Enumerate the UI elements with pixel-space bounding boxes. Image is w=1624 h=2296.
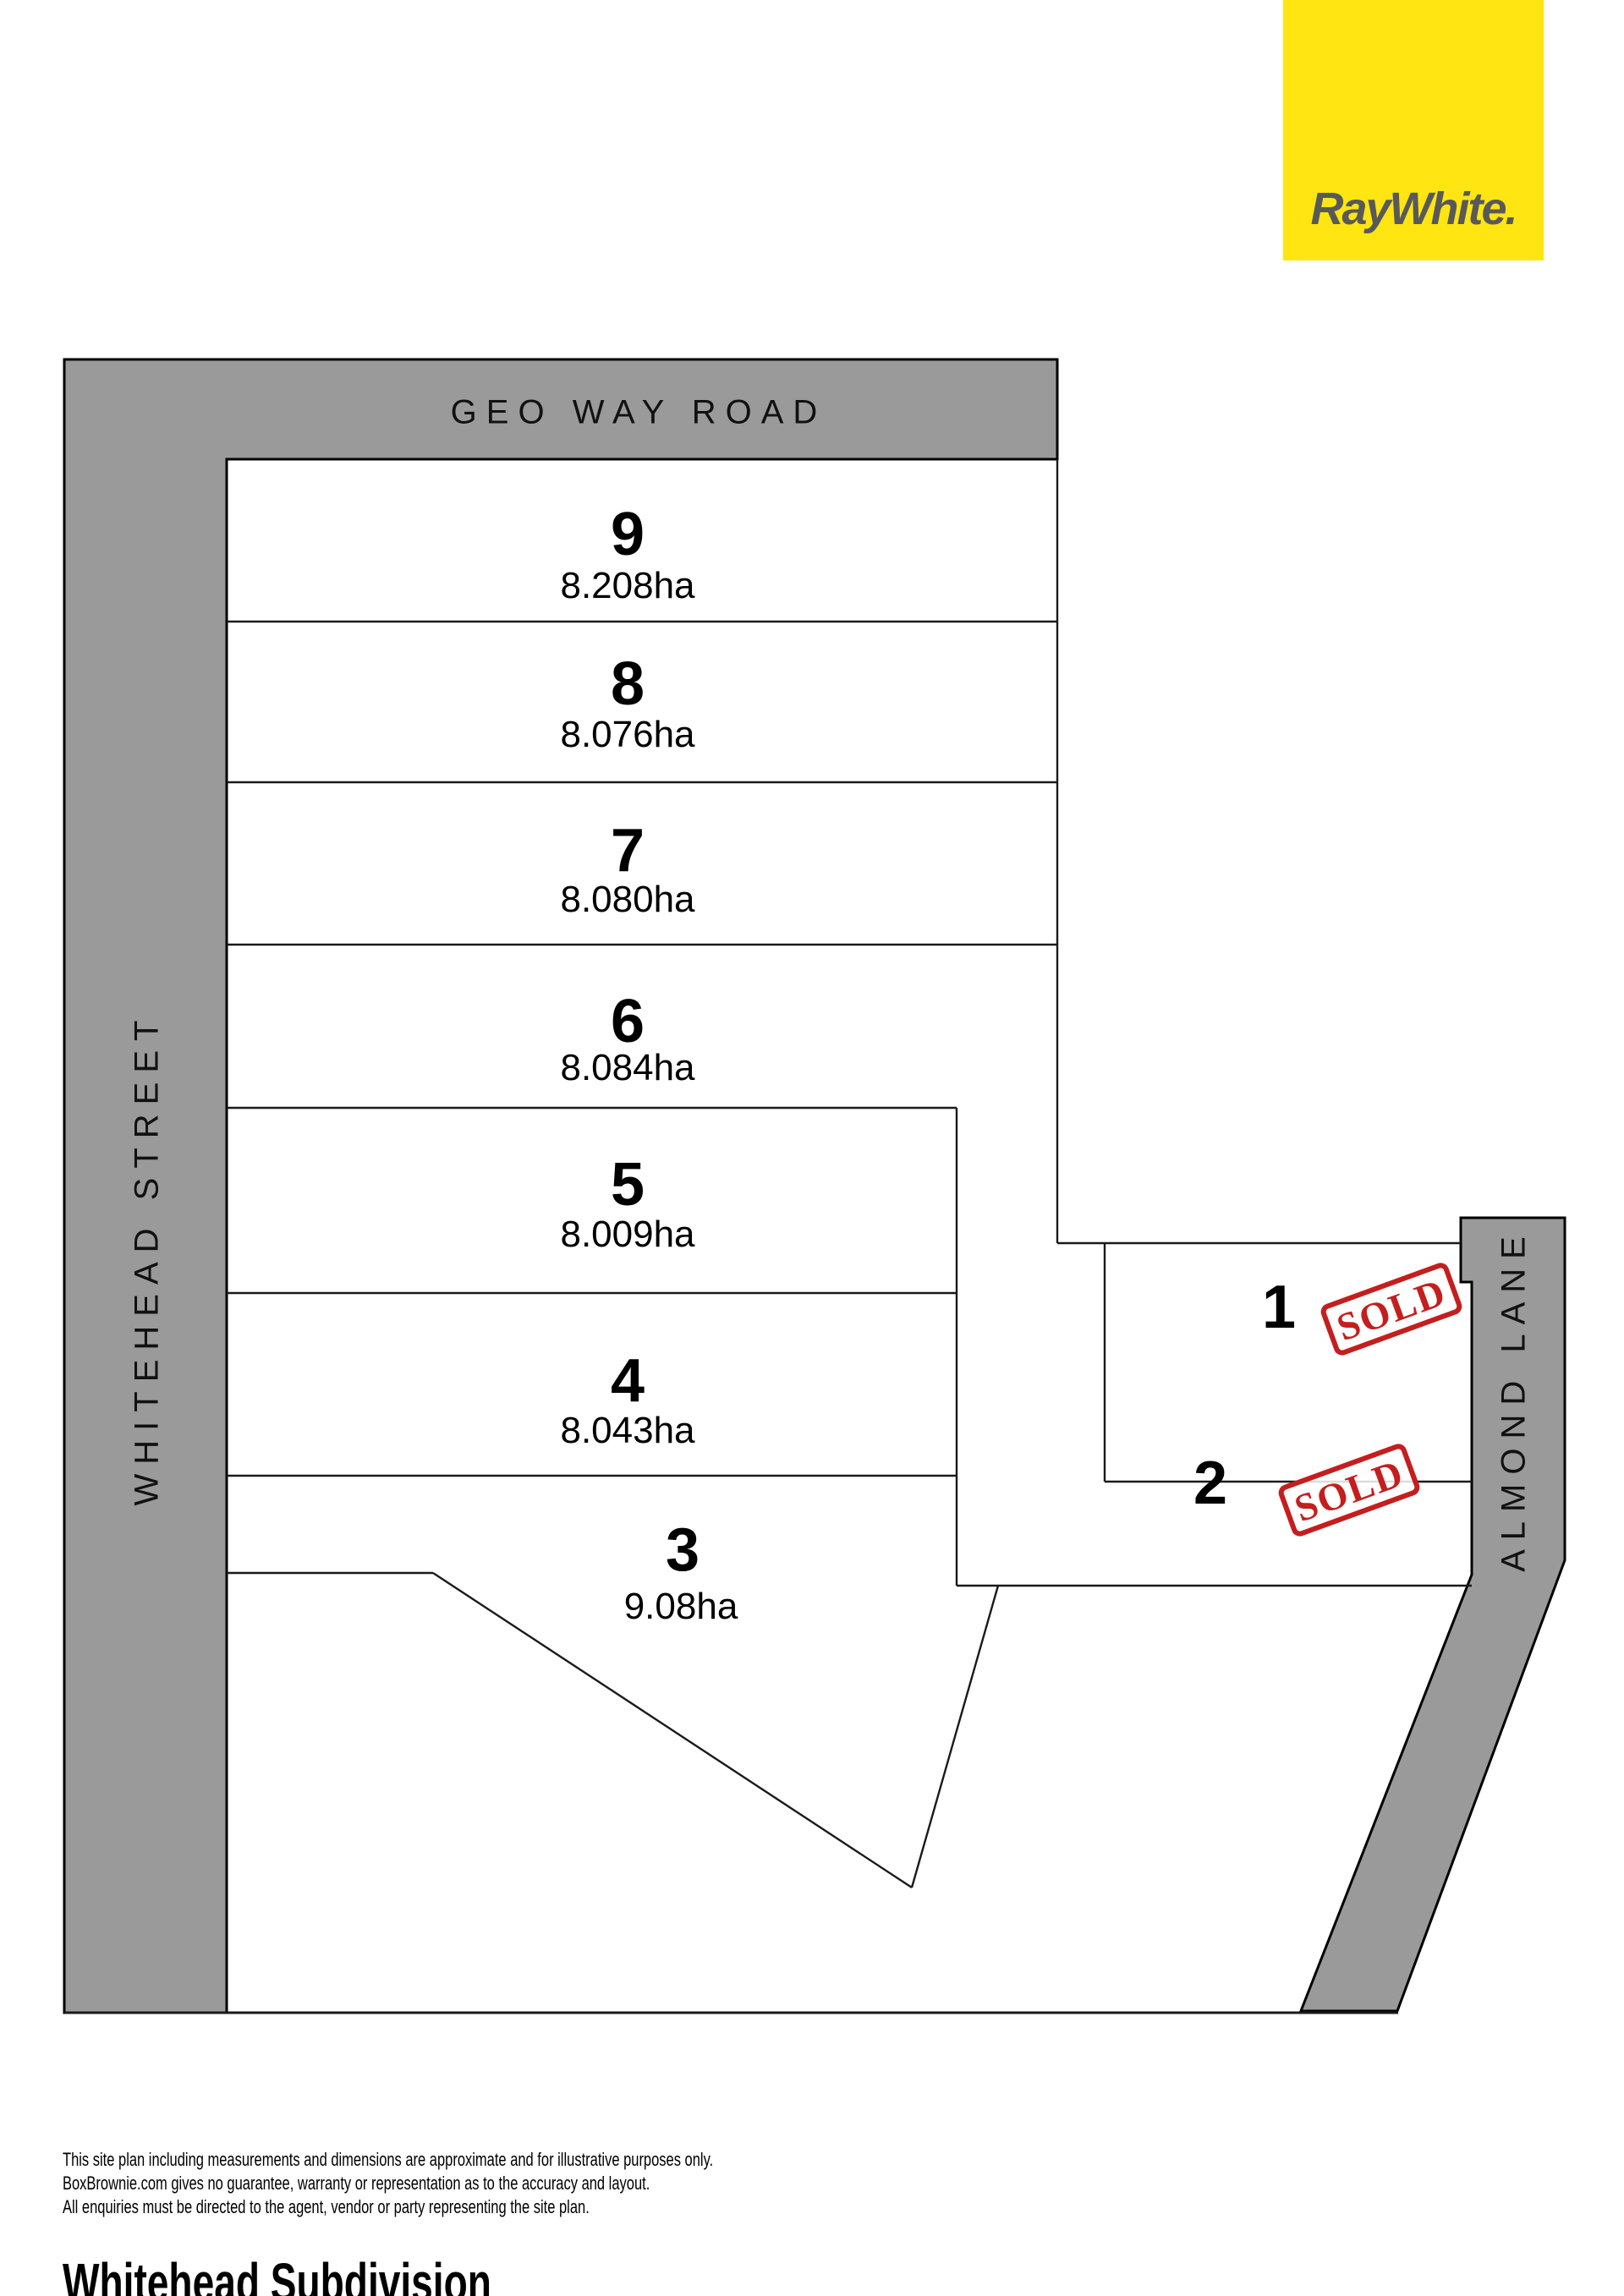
plan-title: Whitehead Subdivision [63,2251,491,2296]
raywhite-logo-text: RayWhite. [1310,183,1516,235]
site-plan-page: RayWhite. GEO WAY ROAD WHITEHEAD STREET … [0,0,1624,2296]
lot-5-area: 8.009ha [560,1216,694,1253]
lot-boundaries [64,459,1472,2013]
boundary-lot3-diagonal-right [912,1586,998,1888]
lot-7-area: 8.080ha [560,881,694,918]
lot-2-number: 2 [1193,1453,1227,1514]
road-name-almond-lane: ALMOND LANE [1495,1227,1533,1572]
lot-3-area: 9.08ha [624,1588,738,1625]
raywhite-logo: RayWhite. [1283,0,1544,260]
road-band-geo-way-and-whitehead [64,359,1057,2013]
lot-9-number: 9 [611,504,645,565]
road-name-geo-way-road: GEO WAY ROAD [451,394,827,432]
lot-9-area: 8.208ha [560,567,694,605]
road-name-whitehead-street: WHITEHEAD STREET [129,1011,167,1506]
lot-6-area: 8.084ha [560,1049,694,1087]
disclaimer-line-1: This site plan including measurements an… [63,2148,713,2172]
disclaimer-line-3: All enquiries must be directed to the ag… [63,2195,713,2219]
lot-4-area: 8.043ha [560,1412,694,1449]
disclaimer: This site plan including measurements an… [63,2148,713,2219]
site-plan-drawing [0,0,1624,2296]
lot-7-number: 7 [611,820,645,881]
lot-6-number: 6 [611,991,645,1052]
disclaimer-line-2: BoxBrownie.com gives no guarantee, warra… [63,2172,713,2195]
lot-1-number: 1 [1262,1277,1296,1338]
lot-4-number: 4 [611,1351,645,1411]
lot-5-number: 5 [611,1154,645,1215]
lot-8-number: 8 [611,654,645,715]
lot-8-area: 8.076ha [560,716,694,753]
lot-3-number: 3 [666,1520,700,1581]
